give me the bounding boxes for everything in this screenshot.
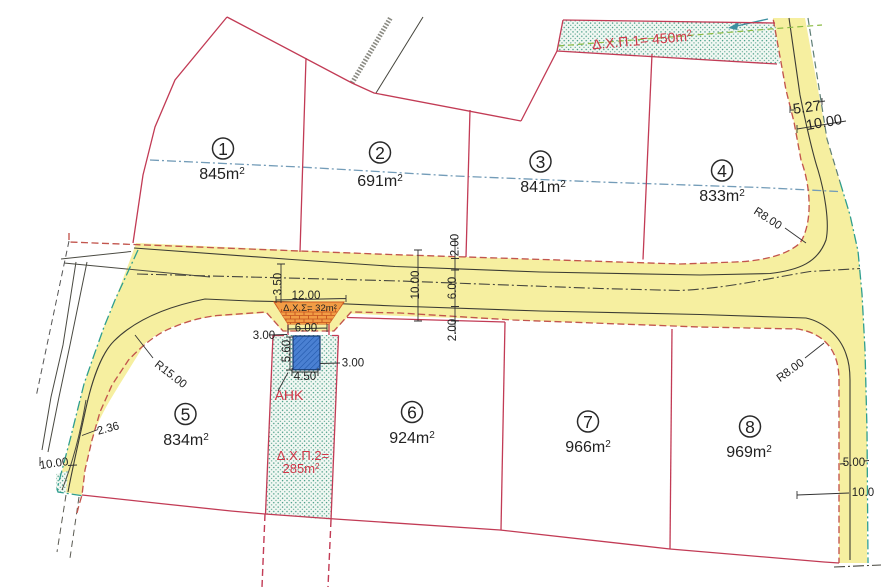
svg-text:3.00: 3.00	[253, 330, 275, 342]
svg-text:7: 7	[583, 412, 593, 432]
svg-text:5: 5	[181, 405, 191, 425]
svg-text:924m2: 924m2	[389, 430, 435, 447]
svg-text:966m2: 966m2	[565, 439, 611, 456]
svg-text:12.00: 12.00	[292, 290, 321, 302]
svg-text:5.00: 5.00	[843, 457, 865, 469]
svg-text:2: 2	[375, 143, 385, 163]
svg-text:Δ.Χ.Σ= 32m²: Δ.Χ.Σ= 32m²	[283, 303, 337, 314]
svg-text:6.00: 6.00	[295, 323, 317, 335]
svg-text:4.50: 4.50	[294, 371, 316, 383]
svg-text:841m2: 841m2	[520, 179, 566, 196]
svg-text:3.00: 3.00	[342, 358, 364, 370]
svg-text:845m2: 845m2	[199, 166, 245, 183]
svg-text:969m2: 969m2	[726, 444, 772, 461]
svg-text:10.00: 10.00	[410, 271, 422, 300]
svg-text:3.50: 3.50	[273, 273, 285, 295]
svg-text:834m2: 834m2	[163, 432, 209, 449]
svg-text:ΑΗΚ: ΑΗΚ	[275, 387, 304, 403]
svg-text:691m2: 691m2	[357, 173, 403, 190]
svg-text:2.00: 2.00	[447, 319, 459, 341]
svg-text:6.00: 6.00	[447, 277, 459, 299]
svg-text:285m2: 285m2	[283, 461, 321, 476]
svg-text:2.00: 2.00	[450, 234, 462, 256]
svg-text:6: 6	[407, 403, 417, 423]
svg-text:833m2: 833m2	[699, 188, 745, 205]
svg-text:10.0: 10.0	[852, 487, 874, 499]
svg-text:3: 3	[536, 152, 546, 172]
svg-text:8: 8	[745, 417, 755, 437]
svg-text:1: 1	[218, 139, 228, 159]
svg-text:5.60: 5.60	[281, 340, 293, 362]
svg-text:4: 4	[717, 161, 727, 181]
